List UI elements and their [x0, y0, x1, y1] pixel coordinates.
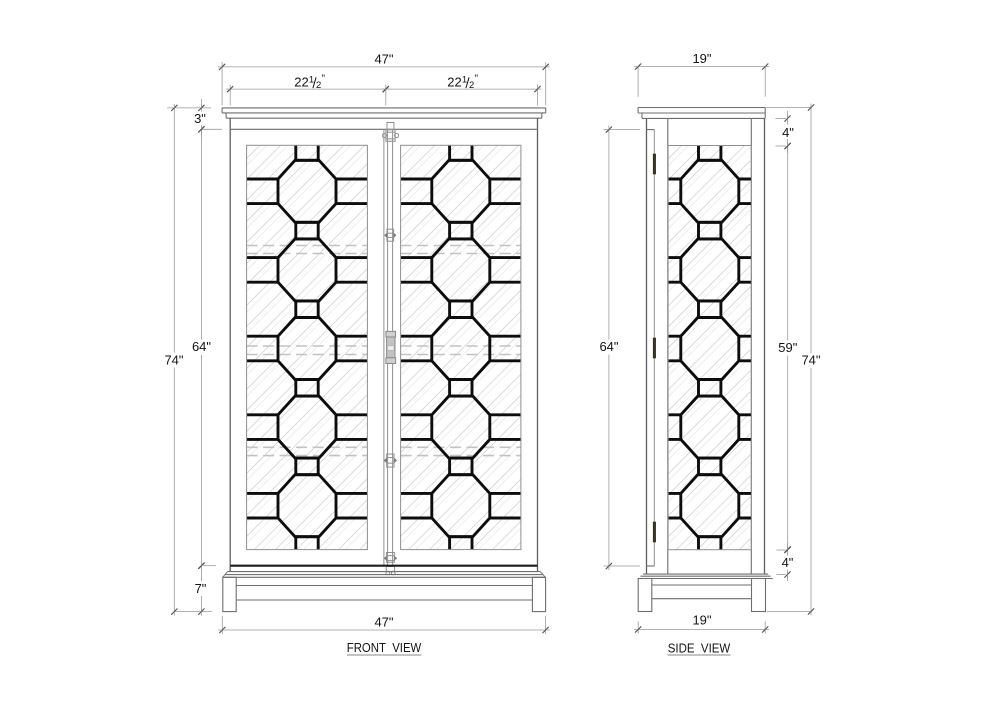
svg-text:": ": [475, 73, 479, 84]
svg-text:": ": [322, 73, 326, 84]
svg-text:59": 59": [778, 340, 797, 355]
svg-text:47": 47": [374, 614, 393, 629]
svg-text:74": 74": [164, 352, 183, 367]
svg-text:4": 4": [782, 555, 794, 570]
svg-text:1: 1: [309, 75, 314, 86]
svg-text:64": 64": [192, 339, 211, 354]
svg-text:3": 3": [194, 111, 206, 126]
svg-text:19": 19": [692, 612, 711, 627]
svg-text:47": 47": [374, 52, 393, 67]
svg-text:4": 4": [782, 125, 794, 140]
svg-text:74": 74": [801, 353, 820, 368]
svg-text:SIDE VIEW: SIDE VIEW: [668, 640, 731, 655]
svg-text:1: 1: [462, 75, 467, 86]
svg-text:22: 22: [447, 74, 461, 89]
svg-text:19": 19": [692, 51, 711, 66]
svg-text:FRONT VIEW: FRONT VIEW: [347, 640, 422, 655]
svg-text:64": 64": [599, 339, 618, 354]
svg-text:7": 7": [195, 581, 207, 596]
svg-text:22: 22: [294, 74, 308, 89]
